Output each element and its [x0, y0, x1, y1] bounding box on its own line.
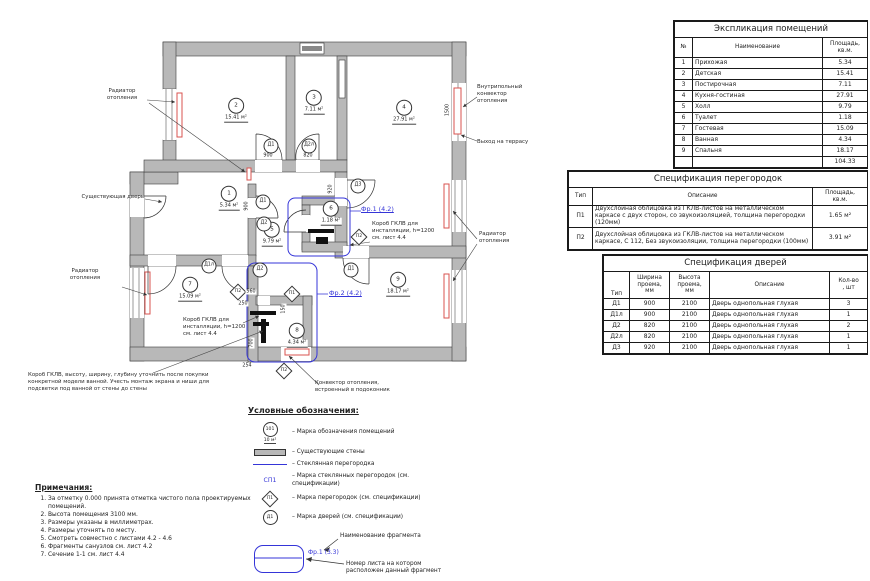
plan-annotation: Выход на террасу — [477, 139, 559, 146]
col-header: Площадь, кв.м. — [813, 188, 868, 206]
col-header: Площадь, кв.м. — [823, 38, 868, 58]
note-item: Сечение 1-1 см. лист 4.4 — [48, 552, 263, 560]
room-explication-table: Экспликация помещений № Наименование Пло… — [673, 20, 868, 169]
table-title: Спецификация перегородок — [569, 172, 868, 188]
table-row: 6Туалет1.18 — [675, 113, 868, 124]
fragment-label: Фр.1 (3.3) — [308, 549, 339, 556]
glass-partition-symbol — [253, 464, 287, 465]
fragment-legend: Фр.1 (3.3) Наименование фрагмента Номер … — [248, 533, 460, 581]
col-header: Описание — [593, 188, 813, 206]
table-row: 104.33 — [675, 157, 868, 168]
legend-item: СП1 – Марка стеклянных перегородок (см. … — [248, 473, 460, 487]
room-mark-symbol: 101 10 м² — [248, 422, 292, 444]
col-header: Кол-во , шт — [830, 272, 868, 299]
table-row: 5Холл9.79 — [675, 102, 868, 113]
floor-plan-sheet: 15.34 м²215.41 м²37.11 м²427.91 м²59.79 … — [0, 0, 870, 580]
col-header: Наименование — [693, 38, 823, 58]
table-title: Экспликация помещений — [675, 22, 868, 38]
note-item: Размеры уточнять по месту. — [48, 528, 263, 536]
col-header: Тип — [569, 188, 593, 206]
note-item: Смотреть совместно с листами 4.2 - 4.6 — [48, 536, 263, 544]
plan-annotation: Радиатор отопления — [479, 231, 533, 245]
table-row: 4Кухня-гостиная27.91 — [675, 91, 868, 102]
legend-item: – Существующие стены — [248, 449, 460, 456]
vent-box — [300, 43, 324, 54]
legend: Условные обозначения: 101 10 м² – Марка … — [248, 406, 460, 581]
door-mark-symbol: Д1 — [263, 510, 278, 525]
plan-annotation: Внутрипольный конвектор отопления — [477, 84, 543, 104]
notes-list: За отметку 0.000 принята отметка чистого… — [35, 496, 263, 560]
table-row: 8Ванная4.34 — [675, 135, 868, 146]
table-row: Д2л8202100Дверь однопольная глухая1 — [604, 332, 868, 343]
table-row: Д19002100Дверь однопольная глухая3 — [604, 299, 868, 310]
table-title: Спецификация дверей — [604, 256, 868, 272]
fragment-sheet-note: Номер листа на котором расположен данный… — [346, 561, 458, 575]
table-row: 2Детская15.41 — [675, 69, 868, 80]
exterior-walls — [130, 42, 466, 361]
wall-niche — [339, 60, 345, 98]
legend-item: П1 – Марка перегородок (см. спецификации… — [248, 493, 460, 505]
notes-title: Примечания: — [35, 483, 263, 492]
legend-title: Условные обозначения: — [248, 406, 460, 415]
legend-item: 101 10 м² – Марка обозначения помещений — [248, 422, 460, 444]
table-row: П1Двухслойная облицовка из ГКЛВ-листов н… — [569, 206, 868, 228]
table-row: П2Двухслойная облицовка из ГКЛВ-листов н… — [569, 228, 868, 250]
note-item: Высота помещения 3100 мм. — [48, 512, 263, 520]
partition-mark-symbol: П1 — [262, 490, 279, 507]
note-item: За отметку 0.000 принята отметка чистого… — [48, 496, 263, 512]
col-header: Описание — [710, 272, 830, 299]
door-spec-table: Спецификация дверей Тип Ширина проема, м… — [602, 254, 868, 355]
table-row: 9Спальня18.17 — [675, 146, 868, 157]
note-item: Размеры указаны в миллиметрах. — [48, 520, 263, 528]
col-header: Ширина проема, мм — [630, 272, 670, 299]
partition-spec-table: Спецификация перегородок Тип Описание Пл… — [567, 170, 868, 251]
table-row: Д39202100Дверь однопольная глухая1 — [604, 343, 868, 354]
floor-plan-svg — [25, 15, 485, 415]
notes: Примечания: За отметку 0.000 принята отм… — [35, 483, 263, 560]
table-row: 3Постирочная7.11 — [675, 80, 868, 91]
legend-item: – Стеклянная перегородка — [248, 461, 460, 468]
legend-item: Д1 – Марка дверей (см. спецификации) — [248, 510, 460, 525]
table-row: Д28202100Дверь однопольная глухая2 — [604, 321, 868, 332]
table-row: 7Гостевая15.09 — [675, 124, 868, 135]
existing-wall-symbol — [254, 449, 286, 456]
table-row: 1Прихожая5.34 — [675, 58, 868, 69]
glass-partition-mark: СП1 — [264, 477, 277, 484]
fragment-name-note: Наименование фрагмента — [340, 533, 421, 539]
note-item: Фрагменты санузлов см. лист 4.2 — [48, 544, 263, 552]
col-header: Тип — [604, 272, 630, 299]
col-header: Высота проема, мм — [670, 272, 710, 299]
table-row: Д1л9002100Дверь однопольная глухая1 — [604, 310, 868, 321]
col-header: № — [675, 38, 693, 58]
